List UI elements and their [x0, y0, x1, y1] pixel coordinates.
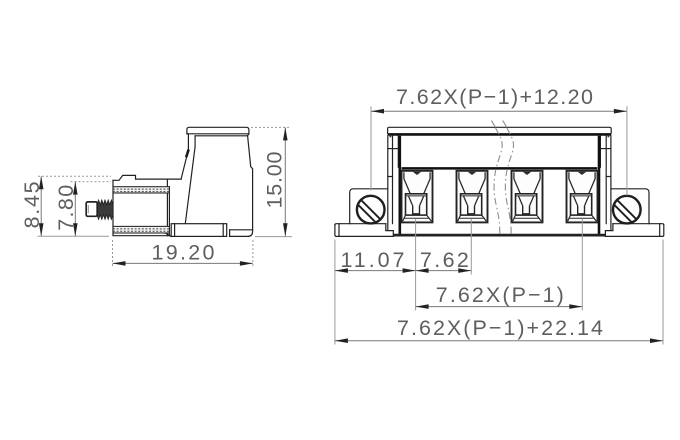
svg-text:8.45: 8.45 — [20, 181, 44, 228]
svg-text:11.07: 11.07 — [341, 248, 405, 272]
svg-text:7.62X(P−1)+12.20: 7.62X(P−1)+12.20 — [396, 85, 593, 109]
svg-text:15.00: 15.00 — [262, 151, 286, 208]
svg-text:7.62: 7.62 — [420, 248, 469, 272]
svg-text:7.62X(P−1)+22.14: 7.62X(P−1)+22.14 — [397, 316, 603, 340]
svg-text:19.20: 19.20 — [152, 241, 215, 265]
svg-text:7.62X(P−1): 7.62X(P−1) — [436, 283, 564, 307]
svg-text:7.80: 7.80 — [54, 185, 78, 231]
